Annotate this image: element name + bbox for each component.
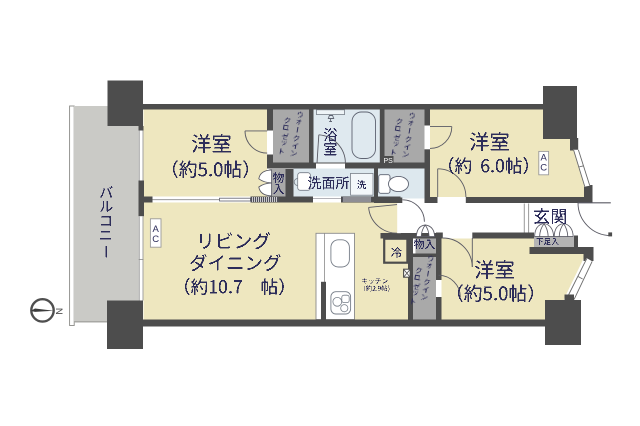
svg-text:PS: PS — [384, 158, 394, 165]
svg-text:C: C — [152, 234, 159, 245]
svg-text:C: C — [540, 163, 547, 174]
svg-text:N: N — [53, 308, 64, 315]
